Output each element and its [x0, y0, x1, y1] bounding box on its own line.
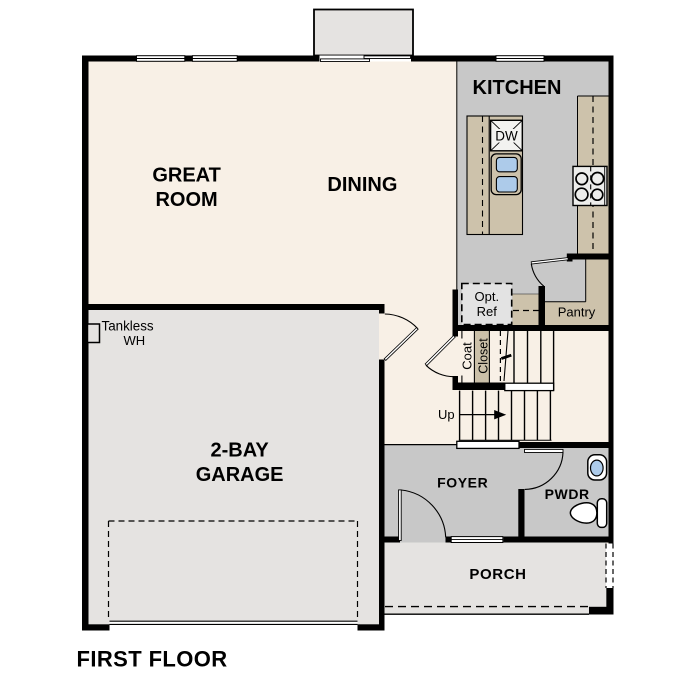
svg-text:FIRST FLOOR: FIRST FLOOR	[77, 647, 228, 672]
svg-text:Ref: Ref	[477, 304, 498, 319]
svg-text:GREAT: GREAT	[152, 165, 221, 187]
svg-text:GARAGE: GARAGE	[196, 464, 284, 486]
svg-text:DW: DW	[495, 129, 518, 144]
svg-text:DINING: DINING	[327, 174, 397, 196]
svg-text:WH: WH	[124, 333, 146, 348]
svg-text:KITCHEN: KITCHEN	[473, 77, 562, 99]
svg-text:PORCH: PORCH	[469, 566, 526, 583]
svg-text:PWDR: PWDR	[545, 486, 590, 502]
svg-text:Pantry: Pantry	[558, 305, 596, 320]
svg-text:FOYER: FOYER	[437, 475, 488, 491]
svg-text:Closet: Closet	[477, 338, 491, 374]
svg-text:Up: Up	[438, 407, 455, 422]
svg-text:2-BAY: 2-BAY	[211, 440, 270, 462]
svg-text:Opt.: Opt.	[475, 289, 500, 304]
svg-text:Coat: Coat	[460, 342, 475, 370]
svg-text:ROOM: ROOM	[155, 189, 217, 211]
svg-text:Tankless: Tankless	[102, 319, 154, 334]
